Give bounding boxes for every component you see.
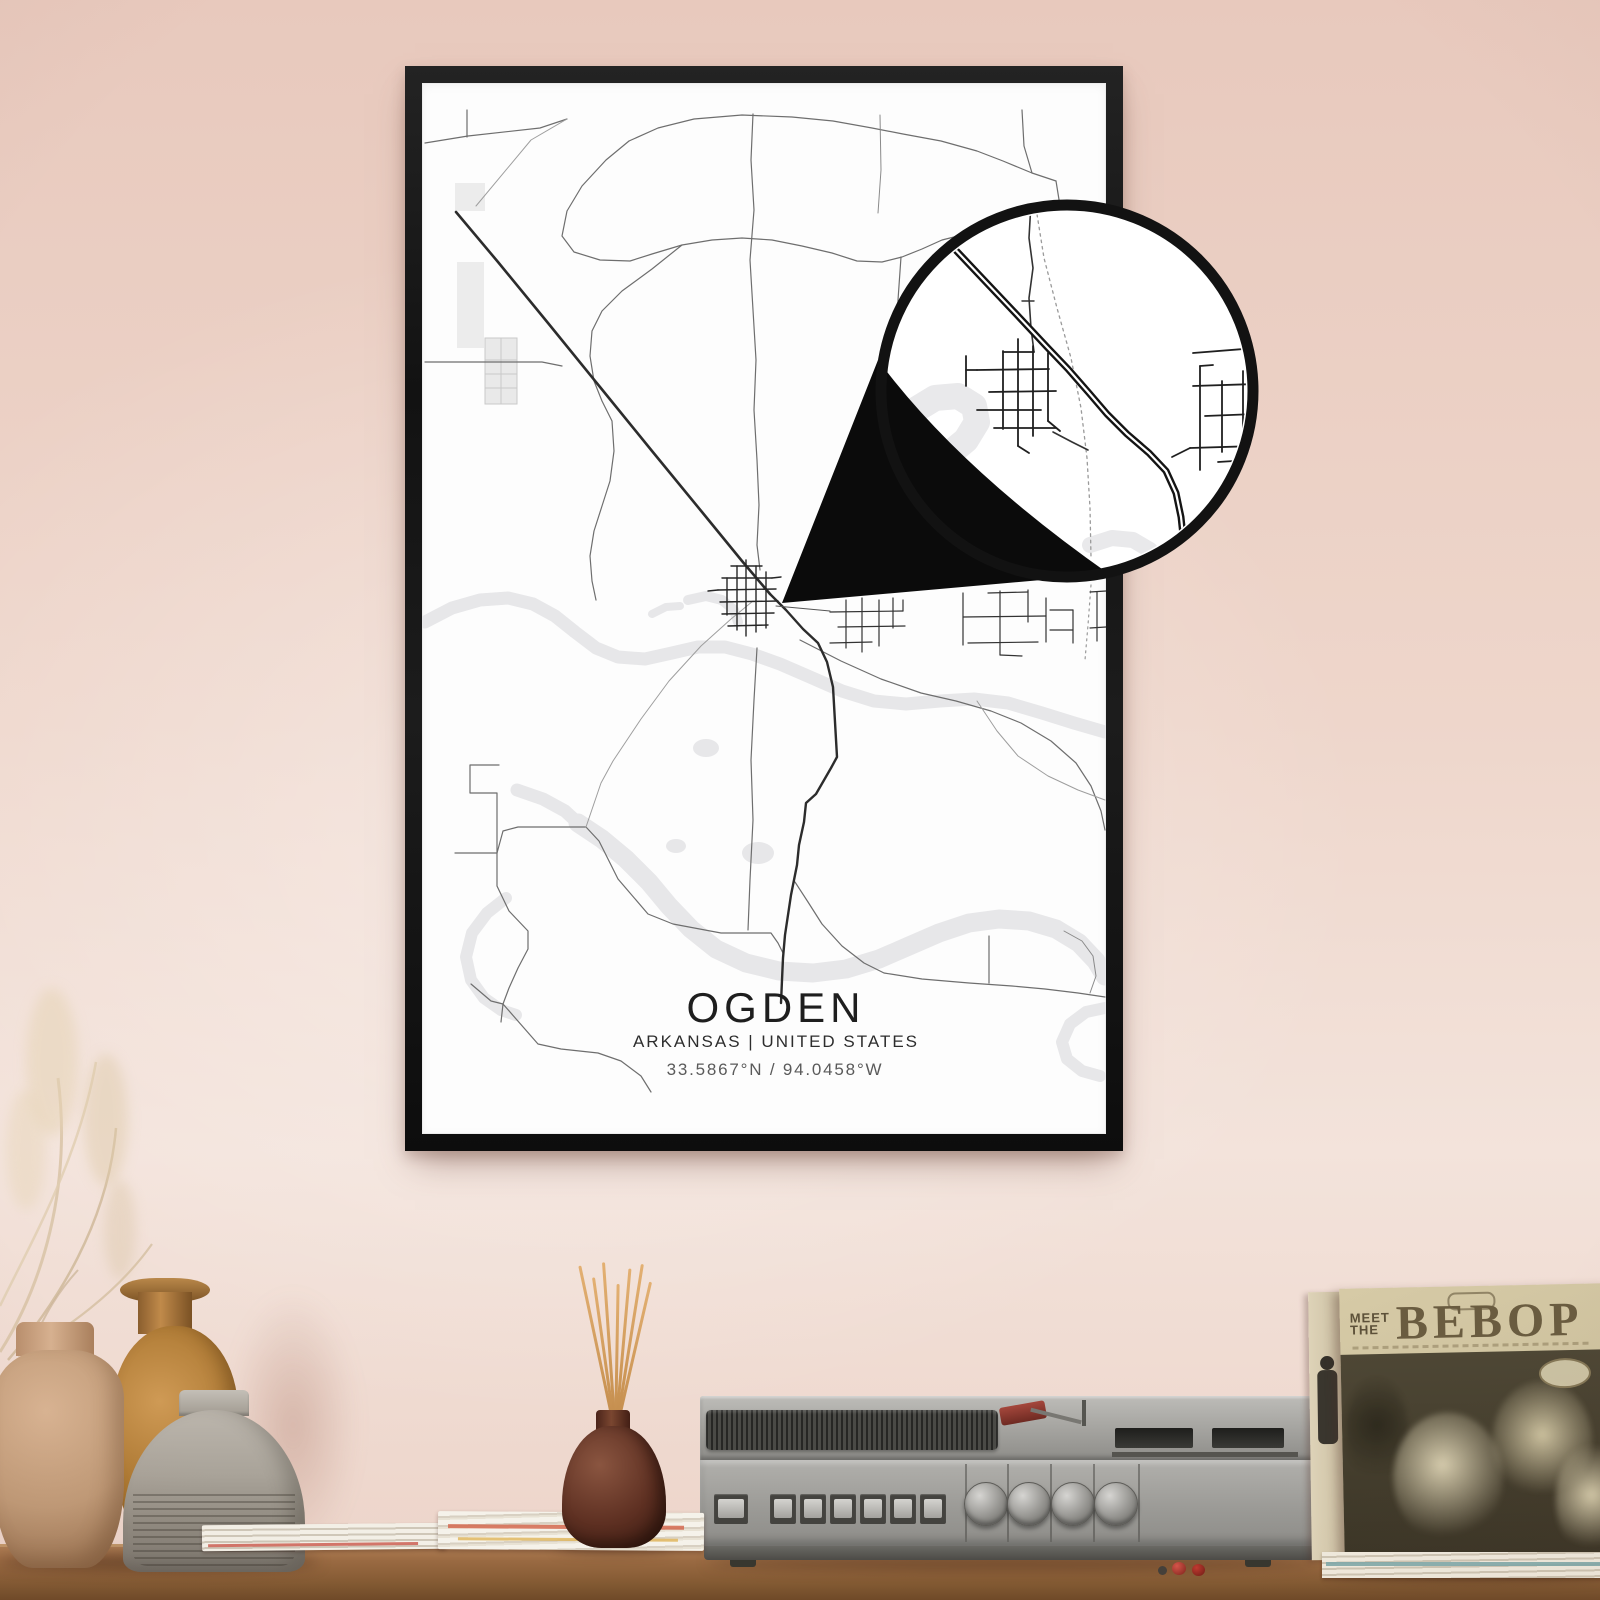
player-base [704,1546,1314,1560]
red-bead [1192,1564,1205,1576]
magazine-stack-left [202,1523,446,1552]
player-push-button [920,1494,946,1524]
panel-divider [1138,1464,1140,1542]
poster-paper [422,83,1106,1134]
player-foot [730,1560,756,1567]
tan-ceramic-vase [0,1322,124,1568]
magazine-stack-right [1322,1552,1600,1578]
album-badge [1539,1358,1592,1389]
red-bead [1172,1562,1186,1575]
player-knob [1051,1482,1095,1526]
deck-slot-lip [1112,1452,1298,1457]
diffuser-bottle [562,1426,666,1548]
player-push-button [860,1494,886,1524]
player-knob [1094,1482,1138,1526]
album-face [1392,1412,1505,1544]
player-push-button [800,1494,826,1524]
album-pretitle-the: THE [1350,1324,1390,1337]
player-front-panel [700,1460,1318,1546]
album-cover: MEET THE BEBOP [1339,1283,1600,1565]
poster-frame [405,66,1123,1151]
dark-bead [1158,1566,1167,1575]
player-knob [1007,1482,1051,1526]
player-push-button [770,1494,796,1524]
record-player [700,1396,1318,1568]
sleeve-figure-head [1320,1356,1334,1370]
turntable-platter [706,1410,998,1450]
deck-slot-left [1115,1428,1193,1448]
player-push-button [714,1494,748,1524]
album-header: MEET THE BEBOP [1339,1283,1600,1355]
album-pretitle: MEET THE [1350,1312,1391,1338]
player-push-button [830,1494,856,1524]
player-top-deck [700,1396,1318,1460]
reed-diffuser [560,1262,680,1562]
player-push-button [890,1494,916,1524]
album-artwork [1341,1349,1600,1565]
tan-vase-body [0,1350,124,1568]
deck-slot-right [1212,1428,1284,1448]
player-knob [964,1482,1008,1526]
player-foot [1245,1560,1271,1567]
tonearm-pivot [1082,1400,1086,1426]
sleeve-figure-body [1317,1370,1338,1444]
